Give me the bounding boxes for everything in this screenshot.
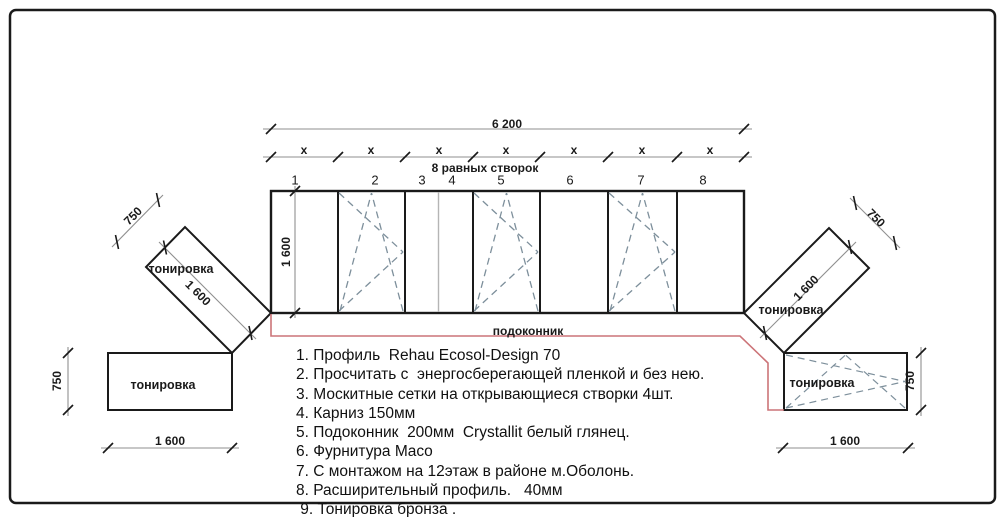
dim-total-width-label: 6 200 [492,118,522,130]
note-item: 7. С монтажом на 12этаж в районе м.Оболо… [296,462,704,481]
sash-number: 7 [637,174,644,187]
note-item: 1. Профиль Rehau Ecosol-Design 70 [296,346,704,365]
sash-number: 4 [448,174,455,187]
dim-x-label: x [368,144,375,156]
dim-x-label: x [503,144,510,156]
sash-number: 8 [699,174,706,187]
dim-x-label: x [301,144,308,156]
dim-x-label: x [571,144,578,156]
windowsill-label: подоконник [493,325,563,337]
dim-left-lower-height-line [63,347,73,416]
technical-drawing: 6 200 x x x x x x x 8 равных створок 1 2… [0,0,1000,517]
note-item: 9. Тонировка бронза . [296,500,704,517]
dim-left-lower-width-label: 1 600 [155,435,185,447]
sash-number: 3 [418,174,425,187]
dim-right-lower-width-label: 1 600 [830,435,860,447]
note-item: 8. Расширительный профиль. 40мм [296,481,704,500]
dim-x-label: x [639,144,646,156]
notes-list: 1. Профиль Rehau Ecosol-Design 70 2. Про… [296,346,704,517]
note-item: 6. Фурнитура Maco [296,442,704,461]
sash-number: 1 [291,174,298,187]
dim-right-lower-height-line [916,347,926,416]
dim-height-label: 1 600 [280,237,292,267]
tint-label-right-lower: тонировка [790,377,855,390]
sash-number: 2 [371,174,378,187]
note-item: 2. Просчитать с энергосберегающей пленко… [296,365,704,384]
main-window-frame [271,191,744,313]
sash-number: 6 [566,174,573,187]
dim-x-label: x [436,144,443,156]
dim-left-lower-height-label: 750 [51,371,63,391]
dim-x-label: x [707,144,714,156]
note-item: 4. Карниз 150мм [296,404,704,423]
sash-number: 5 [497,174,504,187]
note-item: 3. Москитные сетки на открывающиеся ство… [296,385,704,404]
tint-label-left-lower: тонировка [131,379,196,392]
tint-label-left-angled: тонировка [149,263,214,276]
dim-right-lower-height-label: 750 [904,371,916,391]
tint-label-right-angled: тонировка [759,304,824,317]
note-item: 5. Подоконник 200мм Crystallit белый гля… [296,423,704,442]
